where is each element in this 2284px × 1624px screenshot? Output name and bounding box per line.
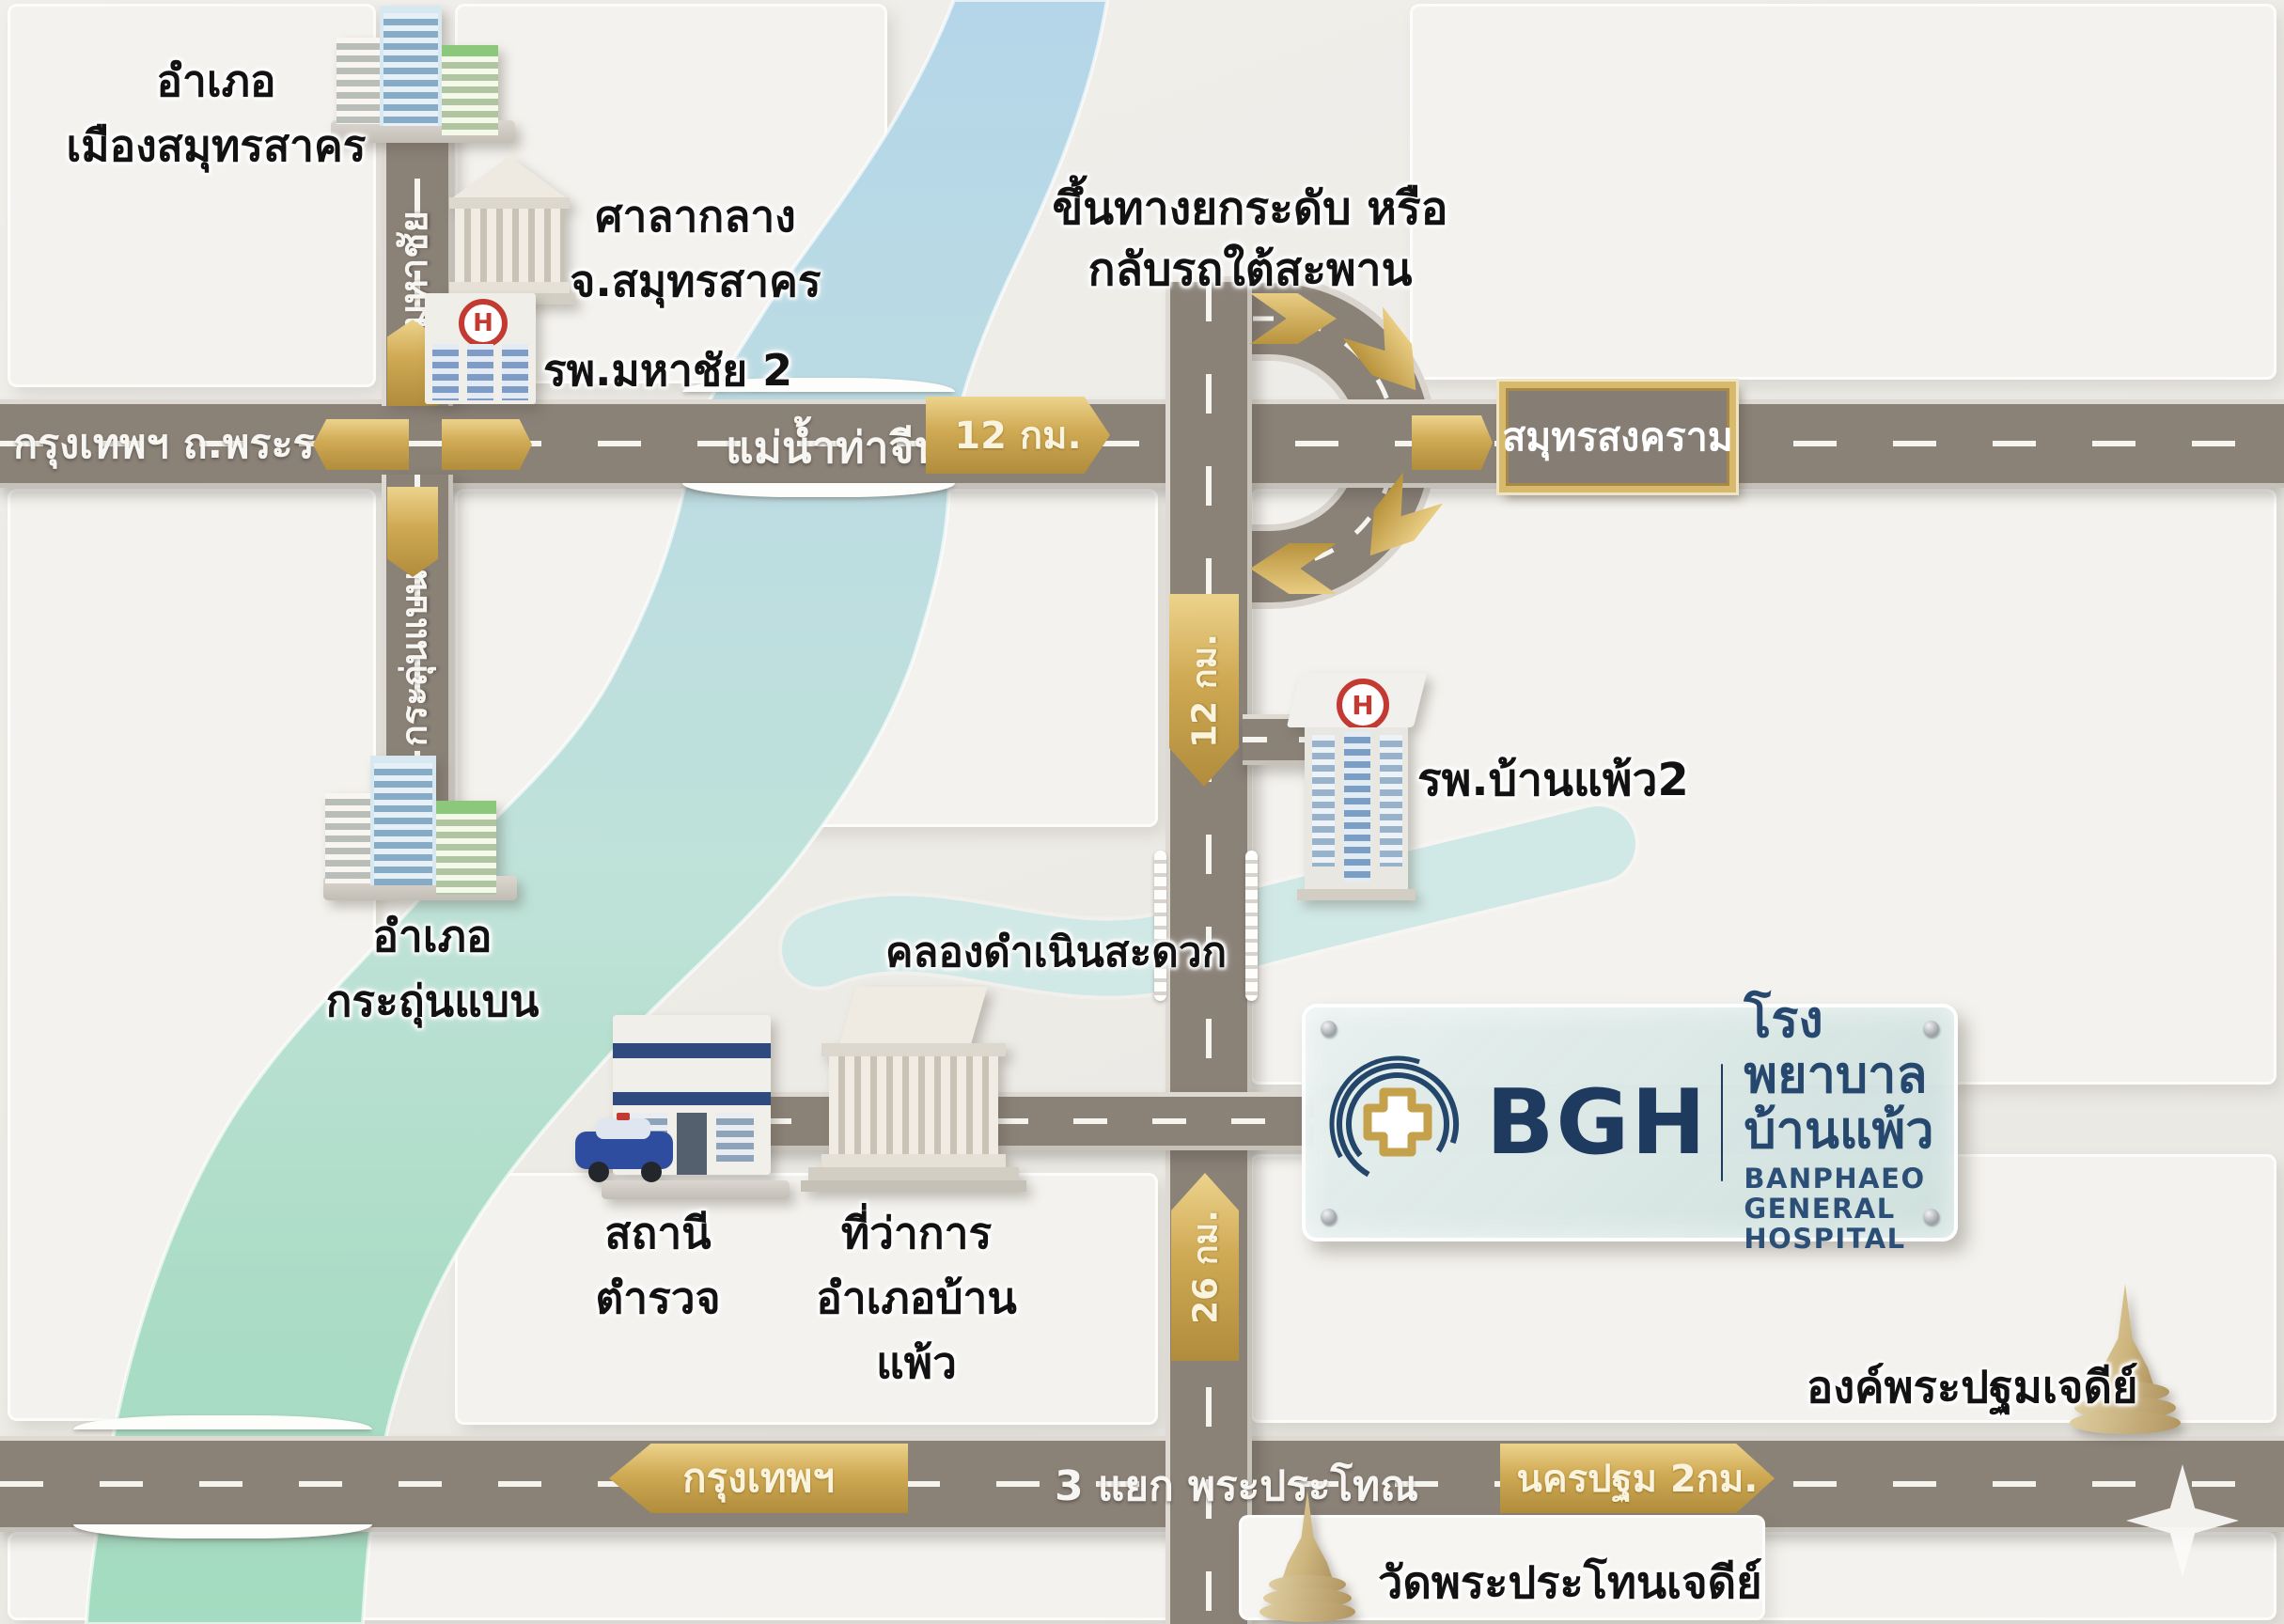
phra-pathom-chedi-label: องค์พระปฐมเจดีย์	[1807, 1351, 2138, 1422]
marker-12km-label: 12 กม.	[1178, 633, 1231, 748]
sign-bangkok-west: กรุงเทพฯ	[609, 1444, 908, 1513]
district-krathum-label: อำเภอ กระถุ่นแบน	[263, 904, 602, 1034]
wat-phra-prathon-label: วัดพระประโทนเจดีย์	[1378, 1547, 1762, 1617]
bgh-divider	[1721, 1064, 1723, 1181]
uturn-note: ขึ้นทางยกระดับ หรือ กลับรถใต้สะพาน	[1015, 179, 1485, 301]
arrow-south-icon	[387, 487, 438, 577]
bgh-name-english: BANPHAEO GENERAL HOSPITAL	[1744, 1164, 1954, 1255]
city-buildings-icon	[323, 739, 517, 900]
government-hall-icon	[449, 156, 570, 314]
arrow-east-icon	[442, 419, 532, 470]
banphaeo2-hospital-label: รพ.บ้านแพ้ว2	[1417, 744, 1689, 816]
district-office-label: ที่ว่าการ อำเภอบ้าน แพ้ว	[780, 1201, 1053, 1396]
sign-samut-songkhram: สมุทรสงคราม	[1499, 382, 1736, 492]
sign-nakhon-pathom-east: นครปฐม 2กม.	[1500, 1444, 1775, 1513]
bgh-logo-icon	[1324, 1043, 1475, 1203]
hospital-cross-icon: H	[459, 299, 508, 348]
bgh-hospital-plate: BGH โรงพยาบาลบ้านแพ้ว BANPHAEO GENERAL H…	[1302, 1004, 1958, 1241]
sign-bangkok-label: กรุงเทพฯ	[682, 1447, 835, 1509]
canal-label: คลองดำเนินสะดวก	[885, 919, 1227, 985]
sign-samut-songkhram-label: สมุทรสงคราม	[1502, 407, 1733, 468]
thachin-river-label: แม่น้ำท่าจีน	[726, 414, 944, 482]
city-hall-label: ศาลากลาง จ.สมุทรสาคร	[555, 184, 837, 314]
helipad-icon: H	[1337, 679, 1389, 731]
pagoda-icon	[1259, 1491, 1355, 1622]
hospital-icon: H	[425, 293, 536, 412]
junction-label: 3 แยก พระประโทณ	[1055, 1453, 1418, 1519]
krathum-road-label: กระถุ่นแบน	[385, 555, 443, 762]
marker-26km-label: 26 กม.	[1179, 1210, 1232, 1324]
arrow-east-icon	[1412, 415, 1493, 470]
police-station-icon	[575, 1002, 796, 1199]
police-station-label: สถานี ตำรวจ	[526, 1201, 790, 1331]
district-mueang-label: อำเภอ เมืองสมุทรสาคร	[38, 49, 395, 179]
hospital-icon: H	[1293, 673, 1420, 902]
sign-12km-east-label: 12 กม.	[954, 405, 1081, 465]
district-office-icon	[801, 987, 1026, 1208]
bridge-icon	[1245, 851, 1258, 1001]
route-map: กรุงเทพฯ ถ.พระราม 2 แม่น้ำท่าจีน 3 แยก พ…	[0, 0, 2284, 1624]
sign-nakhon-pathom-label: นครปฐม 2กม.	[1517, 1448, 1759, 1508]
marker-12km-south: 12 กม.	[1169, 594, 1239, 787]
mahachai2-hospital-label: รพ.มหาชัย 2	[543, 336, 792, 405]
bgh-abbr: BGH	[1486, 1071, 1708, 1175]
bgh-name-thai: โรงพยาบาลบ้านแพ้ว	[1744, 992, 1954, 1159]
arrow-west-icon	[313, 419, 409, 470]
marker-26km-north: 26 กม.	[1171, 1173, 1239, 1361]
sign-12km-east: 12 กม.	[926, 397, 1110, 474]
